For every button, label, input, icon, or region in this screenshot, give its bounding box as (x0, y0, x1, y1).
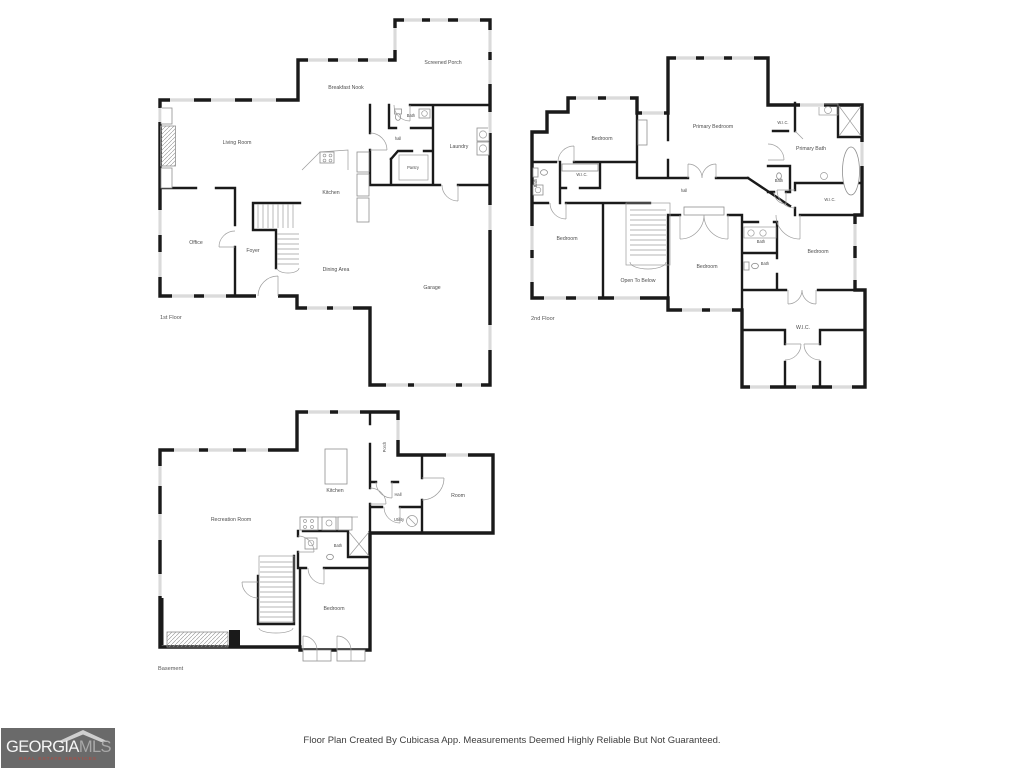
room-label-breakfast: Breakfast Nook (328, 85, 364, 91)
dishwasher (338, 517, 352, 530)
room-label-dining: Dining Area (323, 267, 350, 273)
logo-wordmark: GEORGIAMLS (6, 739, 111, 756)
floor-plan-page: Living Room Breakfast Nook Screened Porc… (0, 0, 1024, 768)
room-label-bath: Bath (407, 113, 416, 118)
room-label-wic-primary: W.I.C. (777, 120, 788, 125)
bathtub (843, 147, 860, 195)
room-label-bedroom-w: Bedroom (556, 236, 577, 242)
floor-plan-canvas: Living Room Breakfast Nook Screened Porc… (0, 0, 1024, 768)
room-label-bath-c-lower: Bath (761, 261, 770, 266)
toilet (752, 263, 759, 268)
floor-caption-basement: Basement (158, 666, 184, 672)
kitchen-island (325, 449, 347, 484)
room-label-bedroom-c: Bedroom (696, 264, 717, 270)
room-label-bedroom-b: Bedroom (323, 606, 344, 612)
room-label-bedroom-e: Bedroom (807, 249, 828, 255)
toilet (541, 170, 548, 176)
floor-caption-second: 2nd Floor (531, 316, 555, 322)
fireplace (161, 126, 176, 166)
room-label-wic-east: W.I.C. (824, 197, 835, 202)
floor-caption-first: 1st Floor (160, 315, 182, 321)
room-label-recreation: Recreation Room (211, 517, 251, 523)
room-label-kitchen: Kitchen (322, 190, 339, 196)
room-label-bedroom-nw: Bedroom (591, 136, 612, 142)
room-label-hall: hall (395, 136, 401, 141)
georgia-mls-logo: GEORGIAMLS REAL ESTATE SERVICES (1, 728, 115, 768)
room-label-garage: Garage (423, 285, 440, 291)
room-label-wic-south: W.I.C. (796, 325, 810, 331)
logo-tagline: REAL ESTATE SERVICES (1, 757, 115, 762)
room-label-living: Living Room (223, 140, 252, 146)
room-label-primary-bedroom: Primary Bedroom (693, 124, 733, 130)
room-label-bath-c-upper: Bath (757, 239, 766, 244)
room-label-utility-b: Utility (394, 517, 405, 522)
room-label-wic-west: W.I.C. (576, 172, 587, 177)
room-label-room-b: Room (451, 493, 465, 499)
room-label-primary-bath: Primary Bath (796, 146, 826, 152)
basement-floor-plan: Kitchen Porch Hall Room Utility Recreati… (158, 412, 493, 672)
room-label-laundry: Laundry (450, 144, 469, 150)
deck-hatch (167, 632, 228, 647)
first-floor-plan: Living Room Breakfast Nook Screened Porc… (160, 20, 490, 385)
dryer (477, 142, 489, 155)
logo-suffix: MLS (79, 738, 111, 756)
room-label-porch-b: Porch (382, 441, 387, 452)
logo-name: GEORGIA (6, 738, 79, 756)
room-label-office: Office (189, 240, 203, 246)
sink-counter (419, 109, 430, 118)
room-label-bath-mid: Bath (775, 178, 784, 183)
second-floor-plan: Bedroom Primary Bedroom W.I.C. Primary B… (531, 58, 865, 387)
closet-shelf (638, 120, 647, 145)
room-label-pantry: Pantry (407, 165, 420, 170)
room-label-open-below: Open To Below (620, 278, 655, 284)
kitchen-sink-counter (322, 517, 336, 530)
room-label-hall-2: hall (681, 188, 687, 193)
room-label-screened-porch: Screened Porch (424, 60, 461, 66)
closet-shelf (562, 164, 598, 171)
room-label-hall-b: Hall (394, 492, 401, 497)
sink (825, 107, 832, 114)
disclaimer-text: Floor Plan Created By Cubicasa App. Meas… (0, 735, 1024, 746)
washer (477, 128, 489, 141)
toilet (327, 554, 334, 559)
room-label-bath-b: Bath (334, 543, 343, 548)
stove (300, 517, 318, 530)
room-label-bath-west: Bath (533, 178, 538, 187)
sink (821, 173, 828, 180)
room-label-kitchen-b: Kitchen (326, 488, 343, 494)
room-label-foyer: Foyer (246, 248, 260, 254)
